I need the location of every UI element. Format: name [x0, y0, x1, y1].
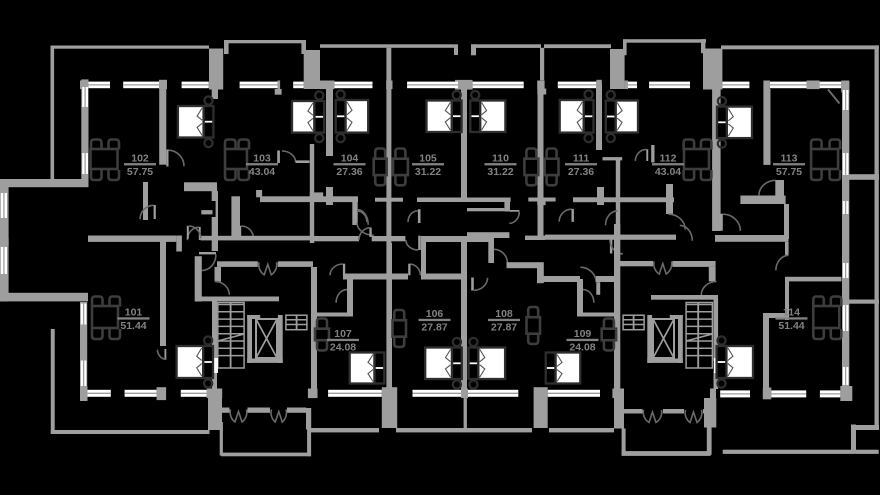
svg-text:51.44: 51.44 [120, 320, 146, 332]
svg-text:101: 101 [125, 307, 143, 319]
svg-text:24.08: 24.08 [330, 342, 356, 354]
svg-text:103: 103 [253, 152, 271, 164]
svg-text:113: 113 [781, 152, 798, 164]
svg-text:111: 111 [573, 152, 590, 164]
svg-text:112: 112 [660, 152, 677, 164]
svg-text:107: 107 [334, 328, 352, 340]
svg-text:27.87: 27.87 [421, 322, 447, 334]
svg-text:27.36: 27.36 [336, 166, 362, 178]
svg-text:104: 104 [341, 152, 359, 164]
svg-text:51.44: 51.44 [778, 320, 804, 332]
svg-text:43.04: 43.04 [655, 166, 681, 178]
svg-text:57.75: 57.75 [776, 166, 802, 178]
svg-text:106: 106 [426, 308, 444, 320]
svg-text:108: 108 [495, 308, 513, 320]
svg-text:105: 105 [419, 152, 437, 164]
svg-text:109: 109 [574, 328, 592, 340]
svg-text:102: 102 [131, 152, 149, 164]
svg-text:27.36: 27.36 [568, 166, 594, 178]
svg-text:110: 110 [492, 152, 509, 164]
svg-text:31.22: 31.22 [415, 166, 441, 178]
svg-text:31.22: 31.22 [487, 166, 513, 178]
svg-text:43.04: 43.04 [249, 166, 275, 178]
svg-text:57.75: 57.75 [127, 166, 153, 178]
svg-text:27.87: 27.87 [491, 322, 517, 334]
svg-text:24.08: 24.08 [569, 342, 595, 354]
svg-text:114: 114 [783, 307, 800, 319]
